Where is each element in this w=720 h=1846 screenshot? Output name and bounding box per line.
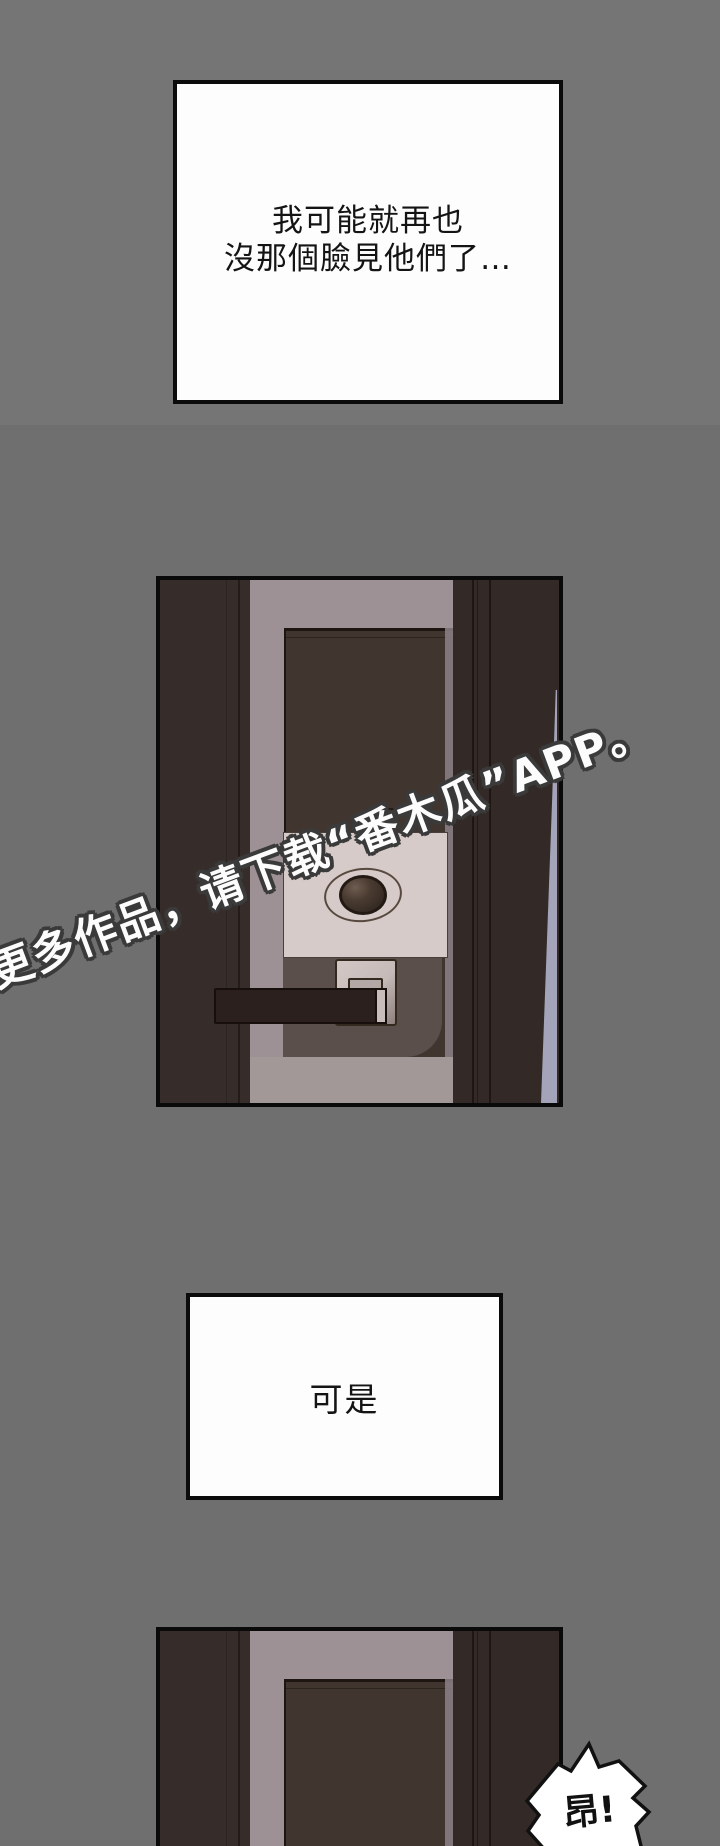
caption-box-2: 可是: [186, 1293, 503, 1500]
caption-2-text: 可是: [310, 1373, 380, 1421]
inner-door-edge-highlight: [445, 1679, 453, 1846]
door-handle-end-face: [375, 988, 387, 1024]
caption-1-line-2: 沒那個臉見他們了…: [224, 238, 512, 280]
door-right-seam-line-2: [477, 580, 478, 1103]
door-right-seam-line-1: [472, 1631, 474, 1846]
caption-box-1: 我可能就再也 沒那個臉見他們了…: [173, 80, 563, 404]
door-right-seam-line-3: [489, 1631, 491, 1846]
door-handle-bar: [214, 988, 387, 1024]
deadbolt-knob: [339, 875, 387, 915]
door-right-seam-line-2: [477, 1631, 478, 1846]
door-frame-top-band: [250, 1631, 453, 1679]
caption-1-line-1: 我可能就再也: [272, 200, 464, 242]
inner-door: [284, 1679, 453, 1846]
door-left-column: [160, 1631, 250, 1846]
door-right-seam-line-1: [472, 580, 474, 1103]
shout-bubble: 昂!: [510, 1735, 660, 1846]
door-left-seam-line: [226, 580, 227, 1103]
door-left-seam-line: [226, 1631, 227, 1846]
inner-door-top-groove: [284, 637, 453, 638]
door-panel-2: [156, 1627, 563, 1846]
shout-bubble-text: 昂!: [562, 1789, 618, 1834]
door-right-seam-line-3: [489, 580, 491, 1103]
inner-door-top-groove: [284, 1688, 453, 1689]
door-frame-top-band: [250, 580, 453, 628]
door-left-edge-line: [238, 1631, 240, 1846]
door-right-column: [453, 580, 559, 1103]
door-left-edge-line: [238, 580, 240, 1103]
comic-page: 我可能就再也 沒那個臉見他們了… 更多作品，请下载“番木瓜”APP。: [0, 0, 720, 1846]
door-bottom-band: [250, 1057, 453, 1103]
door-left-column: [160, 580, 250, 1103]
